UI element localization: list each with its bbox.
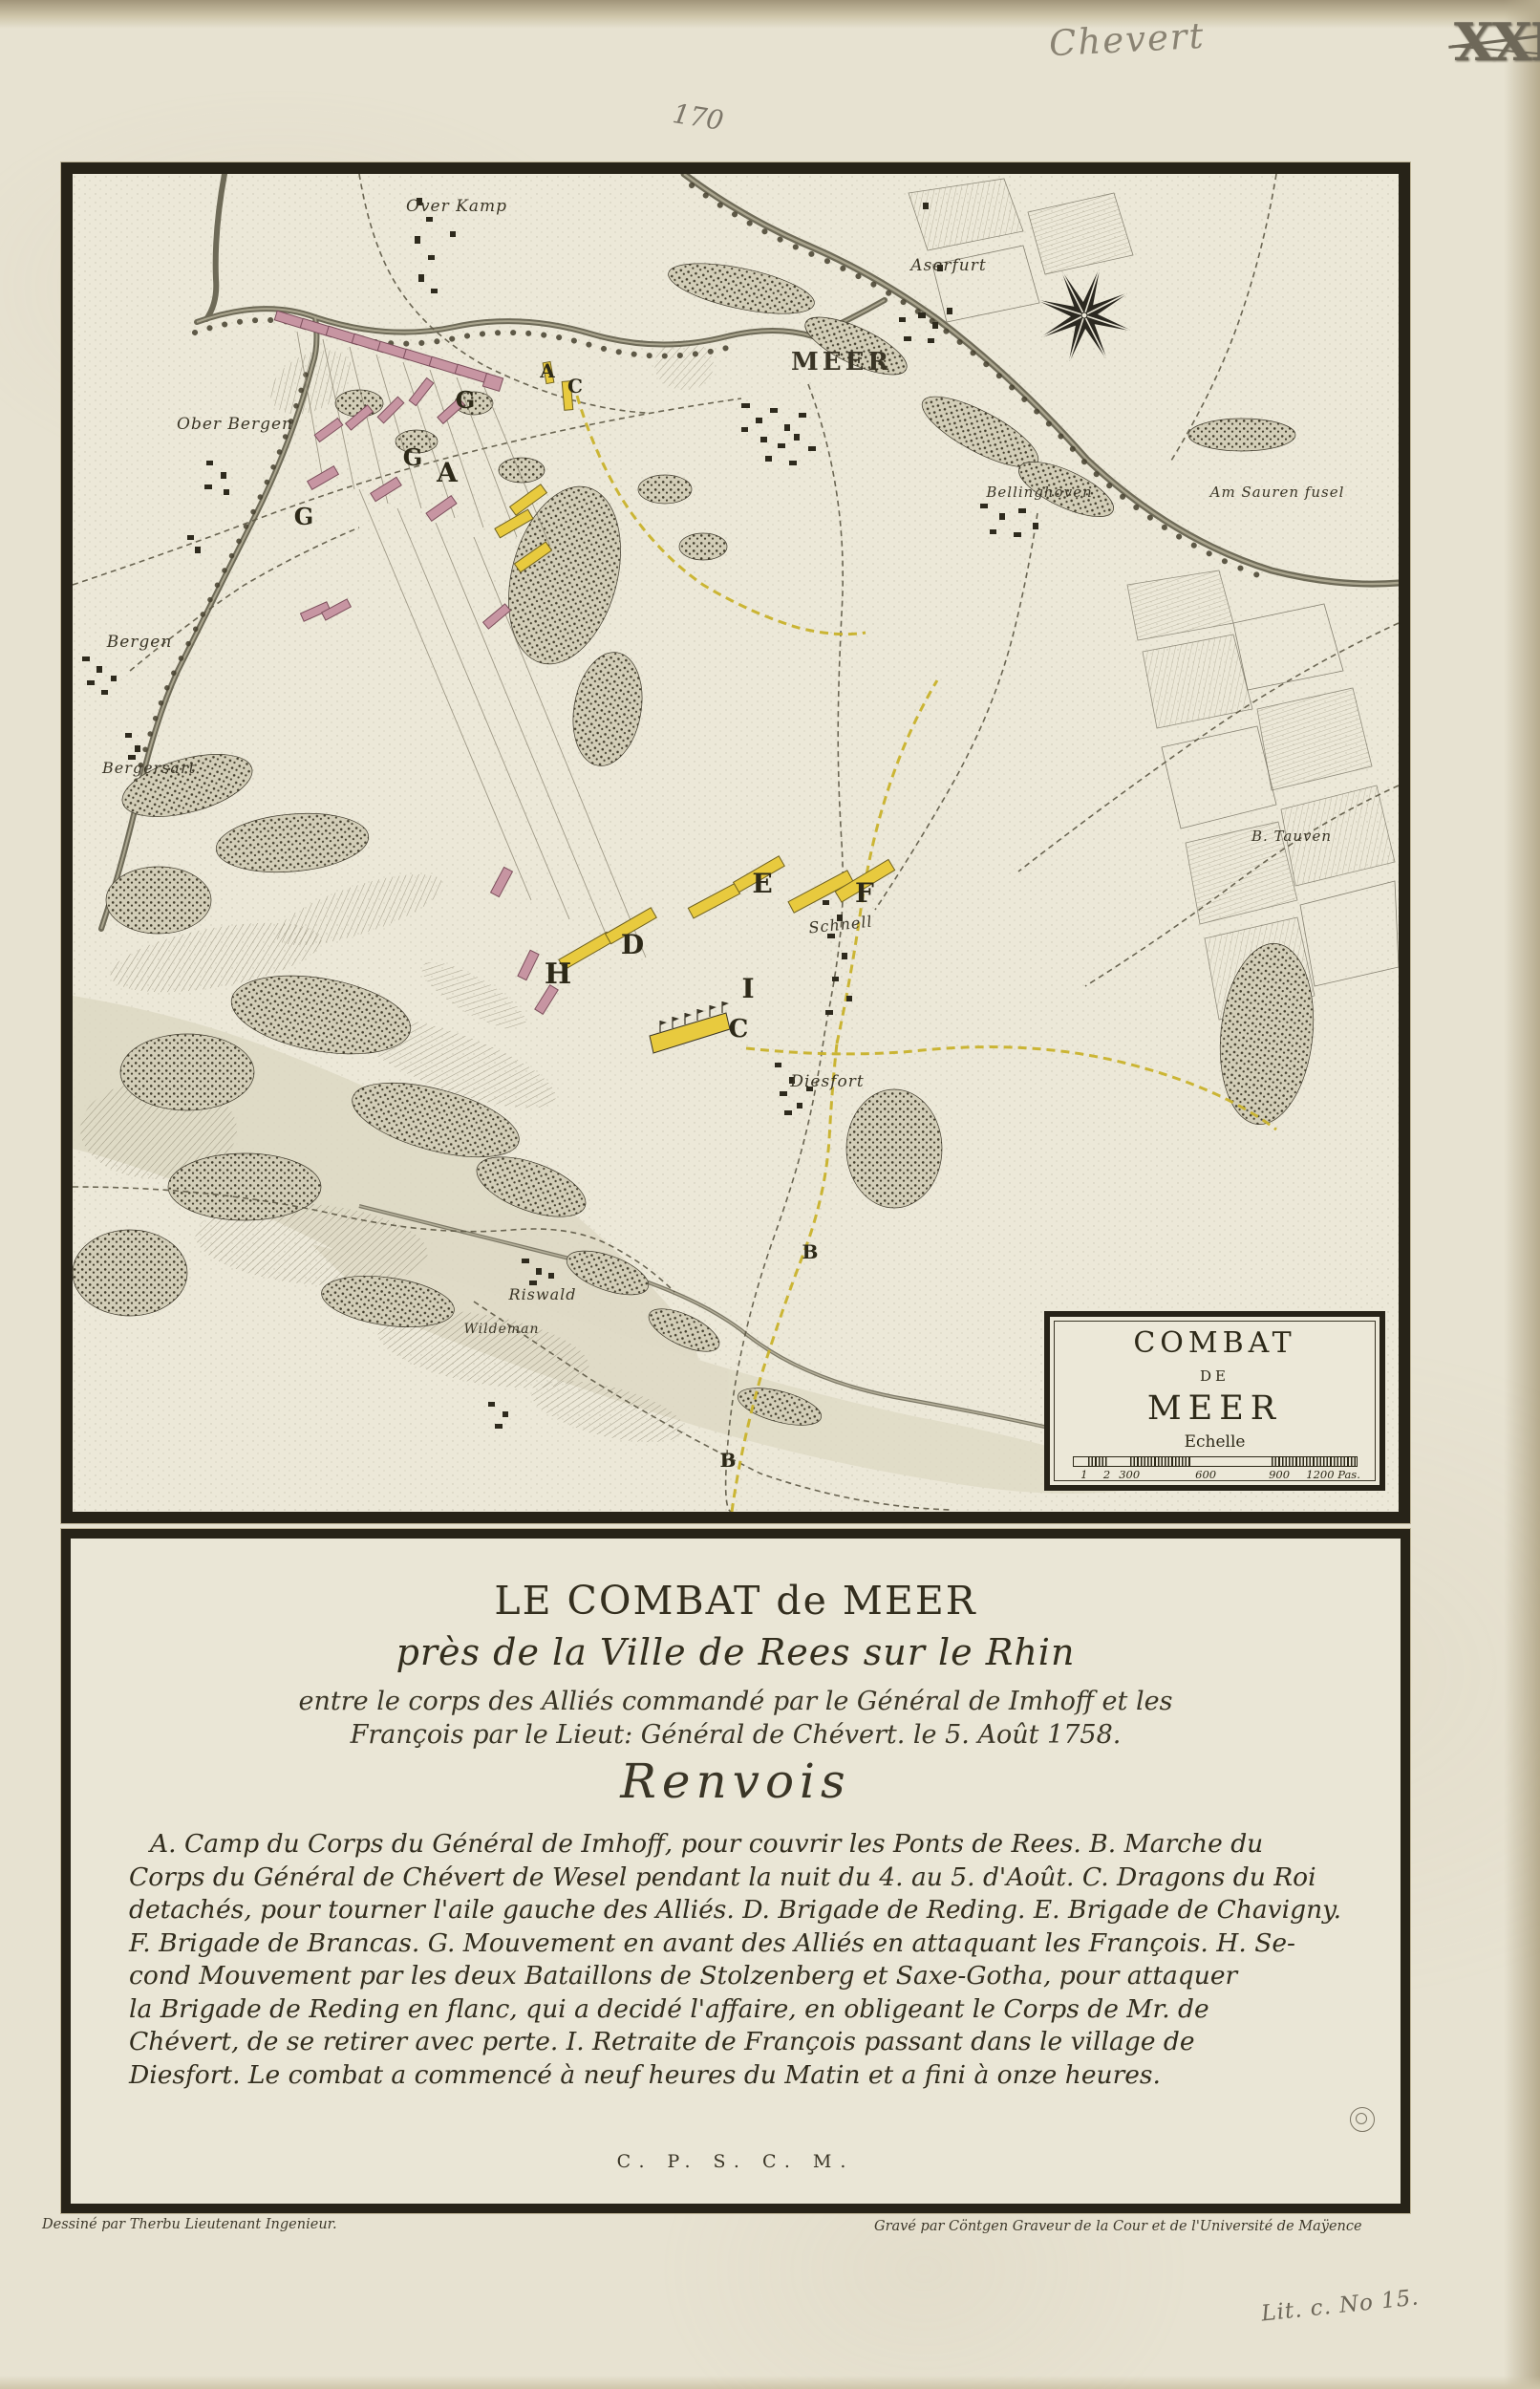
credit-drawn-by: Dessiné par Therbu Lieutenant Ingenieur. <box>42 2217 337 2232</box>
map-letter-I: I <box>741 973 754 1004</box>
photo-edge-right <box>1504 0 1540 2389</box>
map-letter-B1: B <box>802 1240 819 1263</box>
place-label-bergen: Bergen <box>107 633 173 652</box>
place-label-b-tauven: B. Tauven <box>1251 828 1332 845</box>
map-letter-A-small: A <box>540 359 555 382</box>
place-label-diesfort: Diesfort <box>790 1072 864 1091</box>
panel-dedication-2: François par le Lieut: Général de Chéver… <box>74 1720 1398 1750</box>
map-letter-G3: G <box>294 503 314 530</box>
legend-line: cond Mouvement par les deux Bataillons d… <box>129 1960 1350 1993</box>
pencil-collection-mark: Lit. c. No 15. <box>1260 2285 1421 2326</box>
monogram: C. P. S. C. M. <box>74 2151 1398 2172</box>
place-label-ober-bergen: Ober Bergen <box>177 415 293 434</box>
scale-label: Echelle <box>1050 1432 1380 1452</box>
map-letter-C-dragons: C <box>567 375 583 398</box>
legend-line: F. Brigade de Brancas. G. Mouvement en a… <box>129 1927 1350 1961</box>
place-label-aserfurt: Aserfurt <box>910 256 986 275</box>
map-plate: Over Kamp Aserfurt MEER Ober Bergen Bell… <box>61 162 1410 1523</box>
scale-tick: 2 <box>1103 1468 1110 1481</box>
pencil-page-number: 170 <box>671 97 726 137</box>
panel-dedication-1: entre le corps des Alliés commandé par l… <box>74 1687 1398 1716</box>
map-letter-E: E <box>752 868 772 899</box>
map-letter-F: F <box>855 877 874 909</box>
legend-line: la Brigade de Reding en flanc, qui a dec… <box>129 1993 1350 2027</box>
place-label-riswald: Riswald <box>509 1285 577 1303</box>
map-letter-G2: G <box>403 443 423 471</box>
scale-bar <box>1073 1456 1358 1467</box>
scale-tick: 1 <box>1080 1468 1087 1481</box>
scale-tick: 1200 Pas. <box>1306 1468 1360 1481</box>
place-label-meer: MEER <box>791 348 892 377</box>
map-letter-G1: G <box>456 386 476 414</box>
legend-panel: LE COMBAT de MEER près de la Ville de Re… <box>61 1529 1410 2213</box>
scale-tick: 900 <box>1269 1468 1290 1481</box>
cartouche-title-combat: COMBAT <box>1050 1326 1380 1360</box>
pencil-annotation-chevert: Chevert <box>1048 15 1206 64</box>
legend-line: Diesfort. Le combat a commencé à neuf he… <box>129 2059 1350 2093</box>
panel-title: LE COMBAT de MEER <box>74 1578 1398 1624</box>
map-letter-D: D <box>621 929 644 960</box>
legend-line: Corps du Général de Chévert de Wesel pen… <box>129 1862 1350 1895</box>
legend-line: detachés, pour tourner l'aile gauche des… <box>129 1894 1350 1927</box>
photographed-antique-map-page: { "annotations": { "owner_pencil": "Chev… <box>0 0 1540 2389</box>
cartouche-title-meer: MEER <box>1050 1389 1380 1428</box>
legend-line: Chévert, de se retirer avec perte. I. Re… <box>129 2026 1350 2059</box>
legend-text-block: A. Camp du Corps du Général de Imhoff, p… <box>129 1828 1350 2092</box>
plate-stamp-xxi: XXI <box>1454 11 1540 73</box>
panel-subtitle: près de la Ville de Rees sur le Rhin <box>74 1631 1398 1673</box>
place-label-over-kamp: Over Kamp <box>406 197 507 216</box>
place-label-bergersart: Bergersart <box>102 759 196 777</box>
map-letter-H: H <box>545 958 571 991</box>
legend-line: A. Camp du Corps du Général de Imhoff, p… <box>129 1828 1350 1862</box>
place-label-am-sauren-fusel: Am Sauren fusel <box>1210 484 1345 501</box>
map-letter-B2: B <box>720 1449 737 1472</box>
collector-stamp-icon <box>1350 2107 1375 2132</box>
credit-engraved-by: Gravé par Cöntgen Graveur de la Cour et … <box>874 2219 1362 2234</box>
legend-heading: Renvois <box>74 1754 1398 1809</box>
scale-tick: 300 <box>1119 1468 1140 1481</box>
map-cartouche: COMBAT DE MEER Echelle 1 2 300 600 900 1… <box>1044 1311 1385 1491</box>
scale-tick: 600 <box>1195 1468 1216 1481</box>
scale-tick-labels: 1 2 300 600 900 1200 Pas. <box>1073 1468 1356 1483</box>
photo-edge-bottom <box>0 2376 1540 2389</box>
place-label-bellinghoven: Bellinghoven <box>986 484 1092 501</box>
map-letter-C-wedge: C <box>729 1015 749 1044</box>
cartouche-title-de: DE <box>1050 1367 1380 1385</box>
map-letter-A-camp: A <box>437 457 458 488</box>
legend-panel-inner: LE COMBAT de MEER près de la Ville de Re… <box>74 1541 1398 2201</box>
place-label-wildeman: Wildeman <box>464 1322 540 1337</box>
photo-edge-top <box>0 0 1540 29</box>
